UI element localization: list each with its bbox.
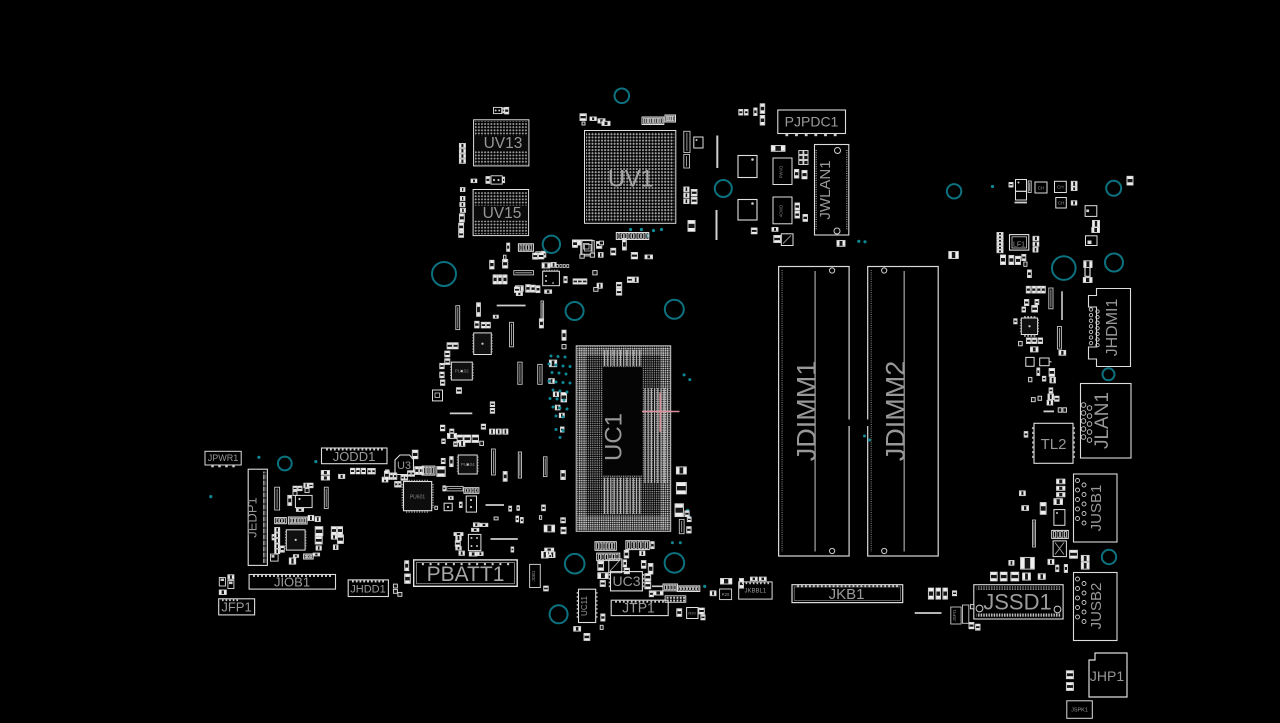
svg-text:TL2: TL2 bbox=[1041, 436, 1067, 453]
svg-text:UV15: UV15 bbox=[483, 205, 522, 222]
svg-text:JLAN1: JLAN1 bbox=[1092, 392, 1113, 449]
svg-text:JFP1: JFP1 bbox=[221, 600, 251, 615]
svg-text:R20: R20 bbox=[688, 611, 696, 616]
svg-text:JHDMI1: JHDMI1 bbox=[1104, 299, 1121, 357]
svg-text:JUSB1: JUSB1 bbox=[1088, 485, 1105, 532]
svg-text:JSPK1: JSPK1 bbox=[1071, 708, 1088, 714]
svg-text:PJPDC1: PJPDC1 bbox=[785, 114, 839, 130]
svg-text:PBATT1: PBATT1 bbox=[427, 563, 505, 586]
svg-text:UV13: UV13 bbox=[484, 135, 523, 152]
svg-text:JHDD1: JHDD1 bbox=[350, 584, 385, 596]
svg-text:JHP1: JHP1 bbox=[1090, 668, 1124, 684]
svg-text:JEDP1: JEDP1 bbox=[245, 497, 260, 537]
svg-text:UC1: UC1 bbox=[601, 413, 628, 461]
svg-text:R26: R26 bbox=[722, 592, 730, 597]
svg-text:PWVD: PWVD bbox=[779, 166, 784, 179]
svg-text:CH: CH bbox=[1057, 185, 1064, 190]
svg-text:JWLAN1: JWLAN1 bbox=[817, 160, 834, 219]
svg-text:UC3: UC3 bbox=[612, 573, 640, 589]
svg-text:JSPI1: JSPI1 bbox=[952, 609, 957, 622]
svg-text:U3: U3 bbox=[397, 460, 411, 472]
svg-text:PU601: PU601 bbox=[410, 495, 426, 501]
svg-text:PU102: PU102 bbox=[455, 369, 469, 374]
svg-text:JKB1: JKB1 bbox=[829, 586, 865, 603]
svg-text:JTP1: JTP1 bbox=[622, 600, 655, 616]
svg-text:JDIMM1: JDIMM1 bbox=[792, 361, 822, 462]
svg-text:CH: CH bbox=[1038, 186, 1045, 191]
svg-text:PU104: PU104 bbox=[461, 462, 475, 467]
svg-text:JDIMM2: JDIMM2 bbox=[881, 361, 911, 462]
svg-text:UV1: UV1 bbox=[608, 166, 653, 193]
svg-text:UC11: UC11 bbox=[580, 596, 589, 616]
svg-text:JKBBL1: JKBBL1 bbox=[745, 589, 767, 595]
svg-text:4CWD: 4CWD bbox=[779, 205, 784, 217]
svg-text:CH: CH bbox=[1058, 201, 1065, 206]
svg-text:JIOB1: JIOB1 bbox=[274, 575, 310, 590]
svg-text:LF1: LF1 bbox=[1013, 242, 1025, 249]
svg-text:JUSB2: JUSB2 bbox=[1088, 583, 1105, 630]
svg-text:JSSD1: JSSD1 bbox=[983, 590, 1051, 615]
svg-text:JPWR1: JPWR1 bbox=[208, 453, 239, 463]
svg-text:JODD1: JODD1 bbox=[333, 449, 376, 464]
svg-text:JDB1: JDB1 bbox=[531, 570, 536, 582]
